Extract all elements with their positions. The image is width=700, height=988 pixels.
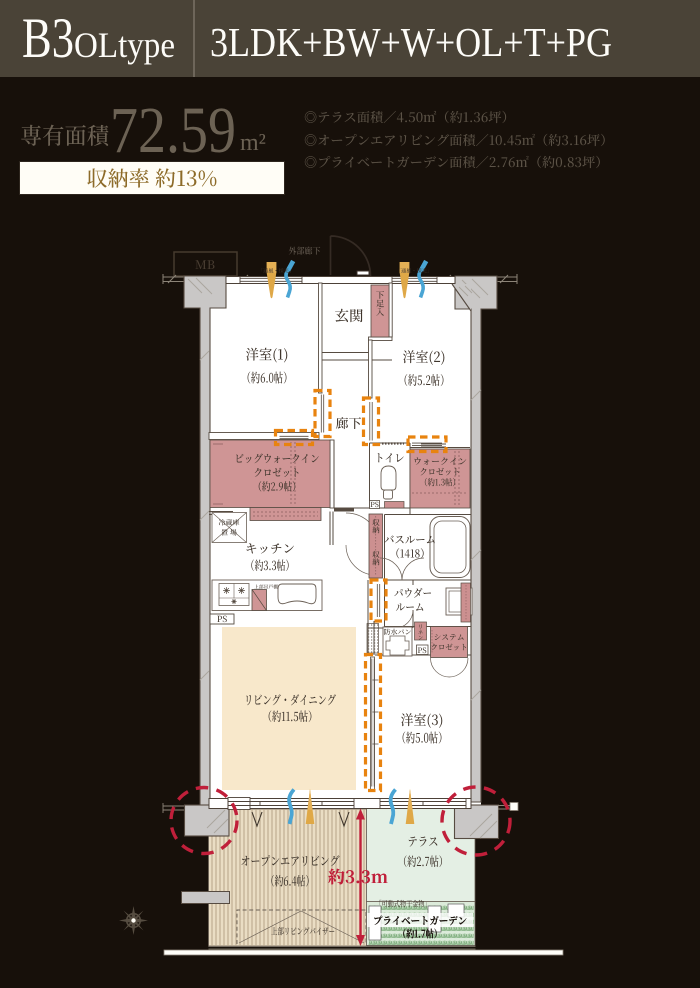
- svg-text:3LDK+BW+W+OL+T+PG: 3LDK+BW+W+OL+T+PG: [210, 19, 612, 65]
- svg-text:B3: B3: [22, 7, 74, 70]
- svg-text:72.59: 72.59: [110, 94, 236, 167]
- svg-text:OLtype: OLtype: [74, 25, 175, 65]
- svg-text:m²: m²: [240, 130, 266, 156]
